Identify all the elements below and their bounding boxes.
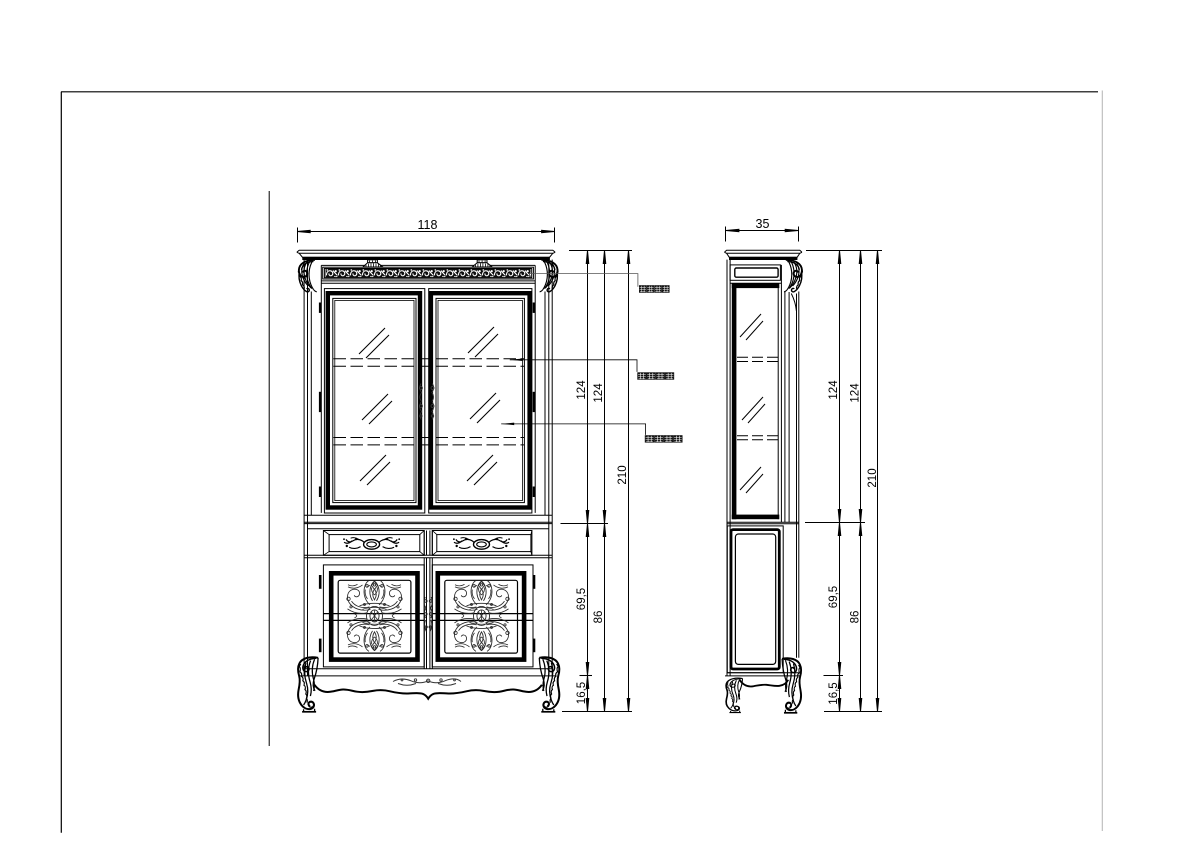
svg-text:124: 124 bbox=[593, 383, 605, 403]
svg-text:69,5: 69,5 bbox=[576, 588, 588, 610]
svg-text:124: 124 bbox=[828, 380, 840, 400]
svg-text:124: 124 bbox=[850, 383, 862, 403]
svg-text:118: 118 bbox=[418, 218, 438, 232]
svg-text:16,5: 16,5 bbox=[828, 682, 840, 704]
svg-text:210: 210 bbox=[617, 465, 629, 484]
svg-text:210: 210 bbox=[867, 468, 879, 487]
svg-text:16,5: 16,5 bbox=[576, 682, 588, 704]
svg-text:86: 86 bbox=[593, 611, 605, 624]
svg-text:86: 86 bbox=[850, 611, 862, 624]
svg-text:35: 35 bbox=[756, 217, 770, 231]
svg-text:69,5: 69,5 bbox=[828, 586, 840, 608]
svg-text:124: 124 bbox=[576, 380, 588, 400]
